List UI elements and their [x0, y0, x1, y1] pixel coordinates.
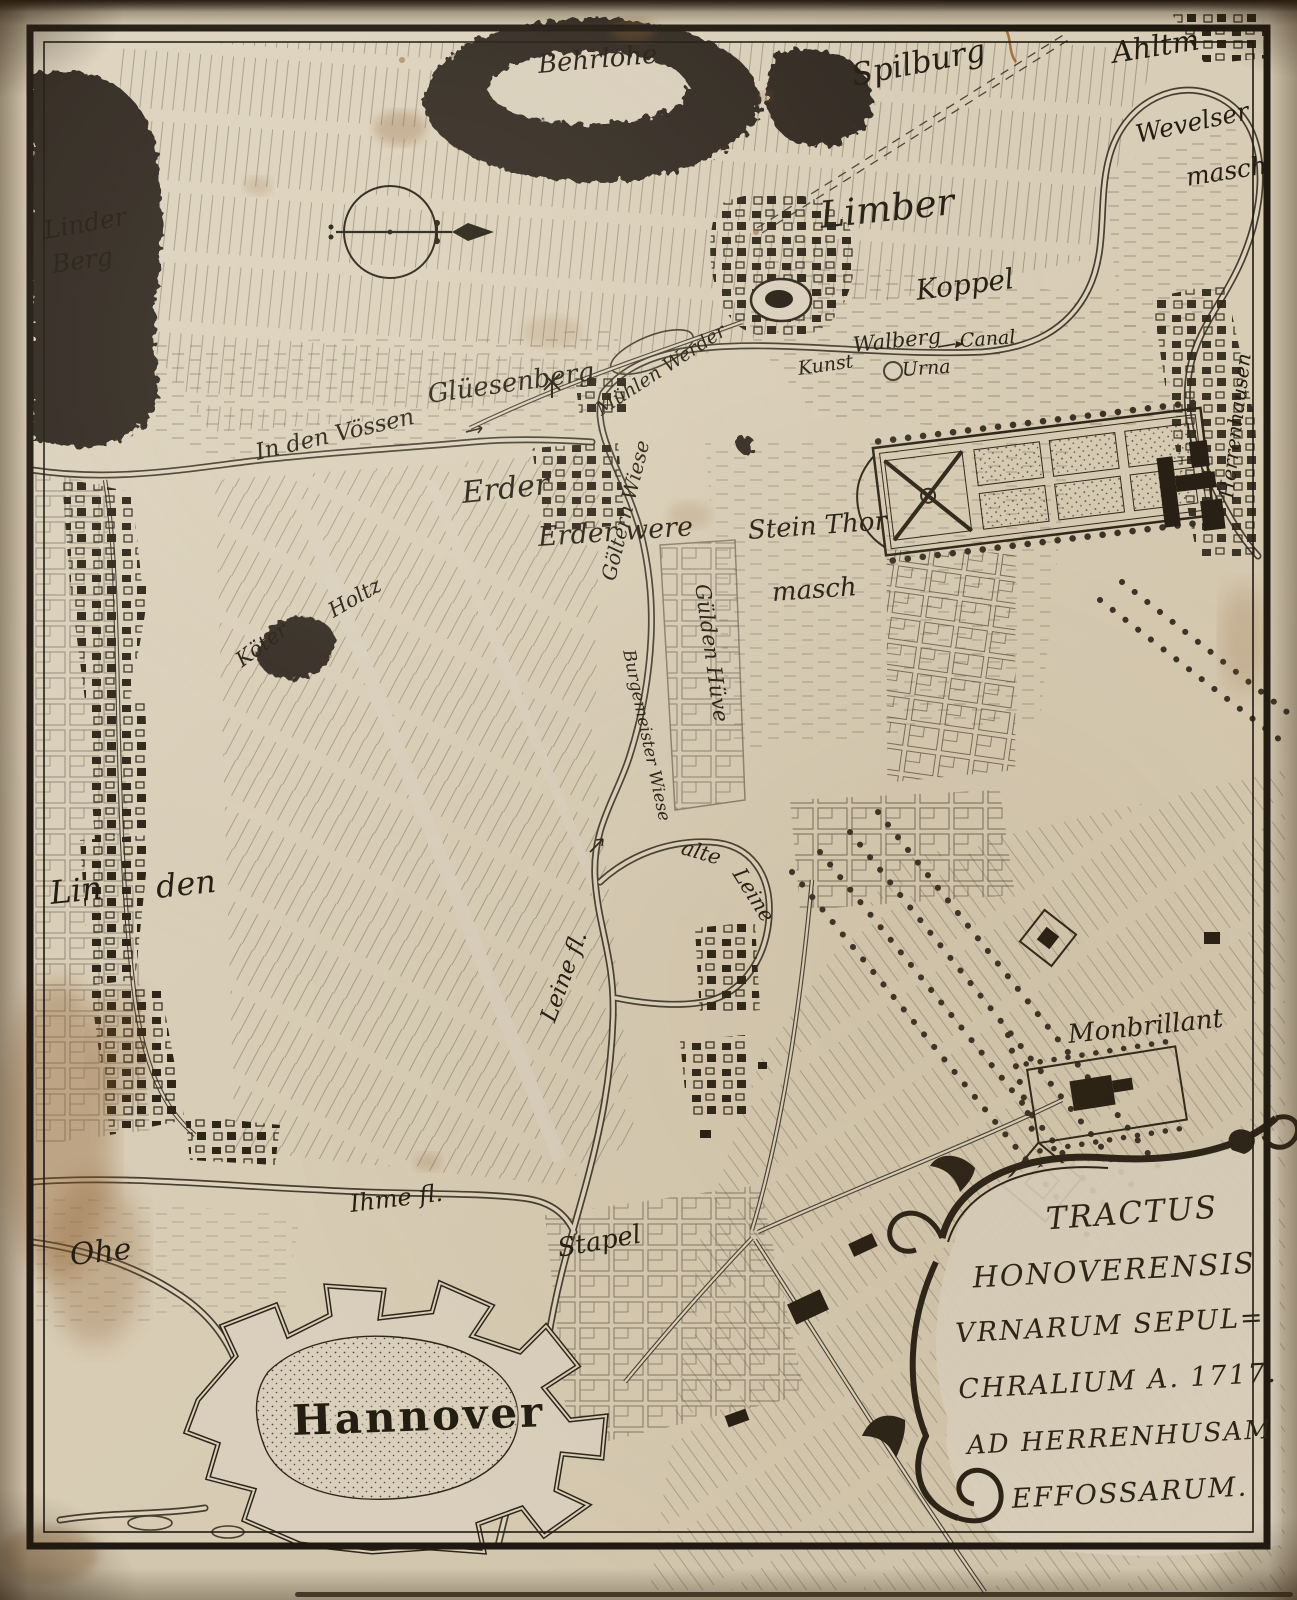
label-lin: Lin [48, 869, 104, 912]
label-stein-thor-masch: masch [771, 572, 858, 608]
label-ohe: Ohe [68, 1232, 133, 1273]
page-edge-line [295, 1592, 1293, 1597]
map-photo: Behrlohe Spilburg Ahltm Wevelser masch L… [0, 0, 1297, 1600]
cartouche-title: TRACTUS HONOVERENSIS VRNARUM SEPUL= CHRA… [946, 1180, 1288, 1527]
label-den: den [154, 862, 218, 906]
label-hannover: Hannover [291, 1387, 546, 1445]
label-canal: Canal [959, 326, 1016, 352]
label-urna: Urna [901, 356, 951, 381]
